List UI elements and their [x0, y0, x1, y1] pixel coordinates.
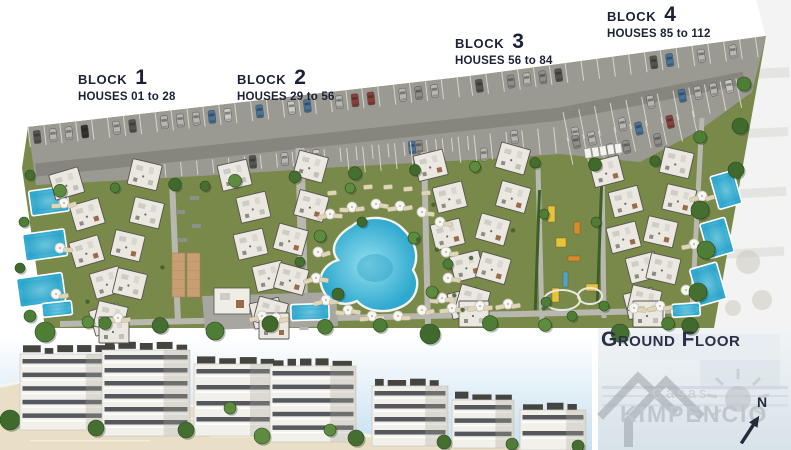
block-name: BLOCK — [455, 37, 504, 51]
block-number: 4 — [664, 3, 676, 26]
block-name: BLOCK — [607, 10, 656, 24]
brand-name-top: Casas — [652, 385, 710, 402]
block-houses: HOUSES 85 to 112 — [607, 28, 711, 41]
block-number: 1 — [135, 66, 147, 89]
block-houses: HOUSES 29 to 56 — [237, 91, 335, 104]
block-houses: HOUSES 01 to 28 — [78, 91, 176, 104]
block-number: 2 — [294, 66, 306, 89]
masterplan-figure: BLOCK 1 HOUSES 01 to 28 BLOCK 2 HOUSES 2… — [0, 0, 791, 450]
block-name: BLOCK — [78, 73, 127, 87]
north-compass: N — [736, 392, 776, 444]
ground-floor-label: Ground Floor — [601, 328, 740, 352]
block-4-label: BLOCK 4 HOUSES 85 to 112 — [607, 3, 711, 41]
block-number: 3 — [512, 30, 524, 53]
block-1-label: BLOCK 1 HOUSES 01 to 28 — [78, 66, 176, 104]
block-name: BLOCK — [237, 73, 286, 87]
block-3-label: BLOCK 3 HOUSES 56 to 84 — [455, 30, 553, 68]
block-2-label: BLOCK 2 HOUSES 29 to 56 — [237, 66, 335, 104]
north-arrow-icon — [736, 400, 772, 444]
block-houses: HOUSES 56 to 84 — [455, 55, 553, 68]
